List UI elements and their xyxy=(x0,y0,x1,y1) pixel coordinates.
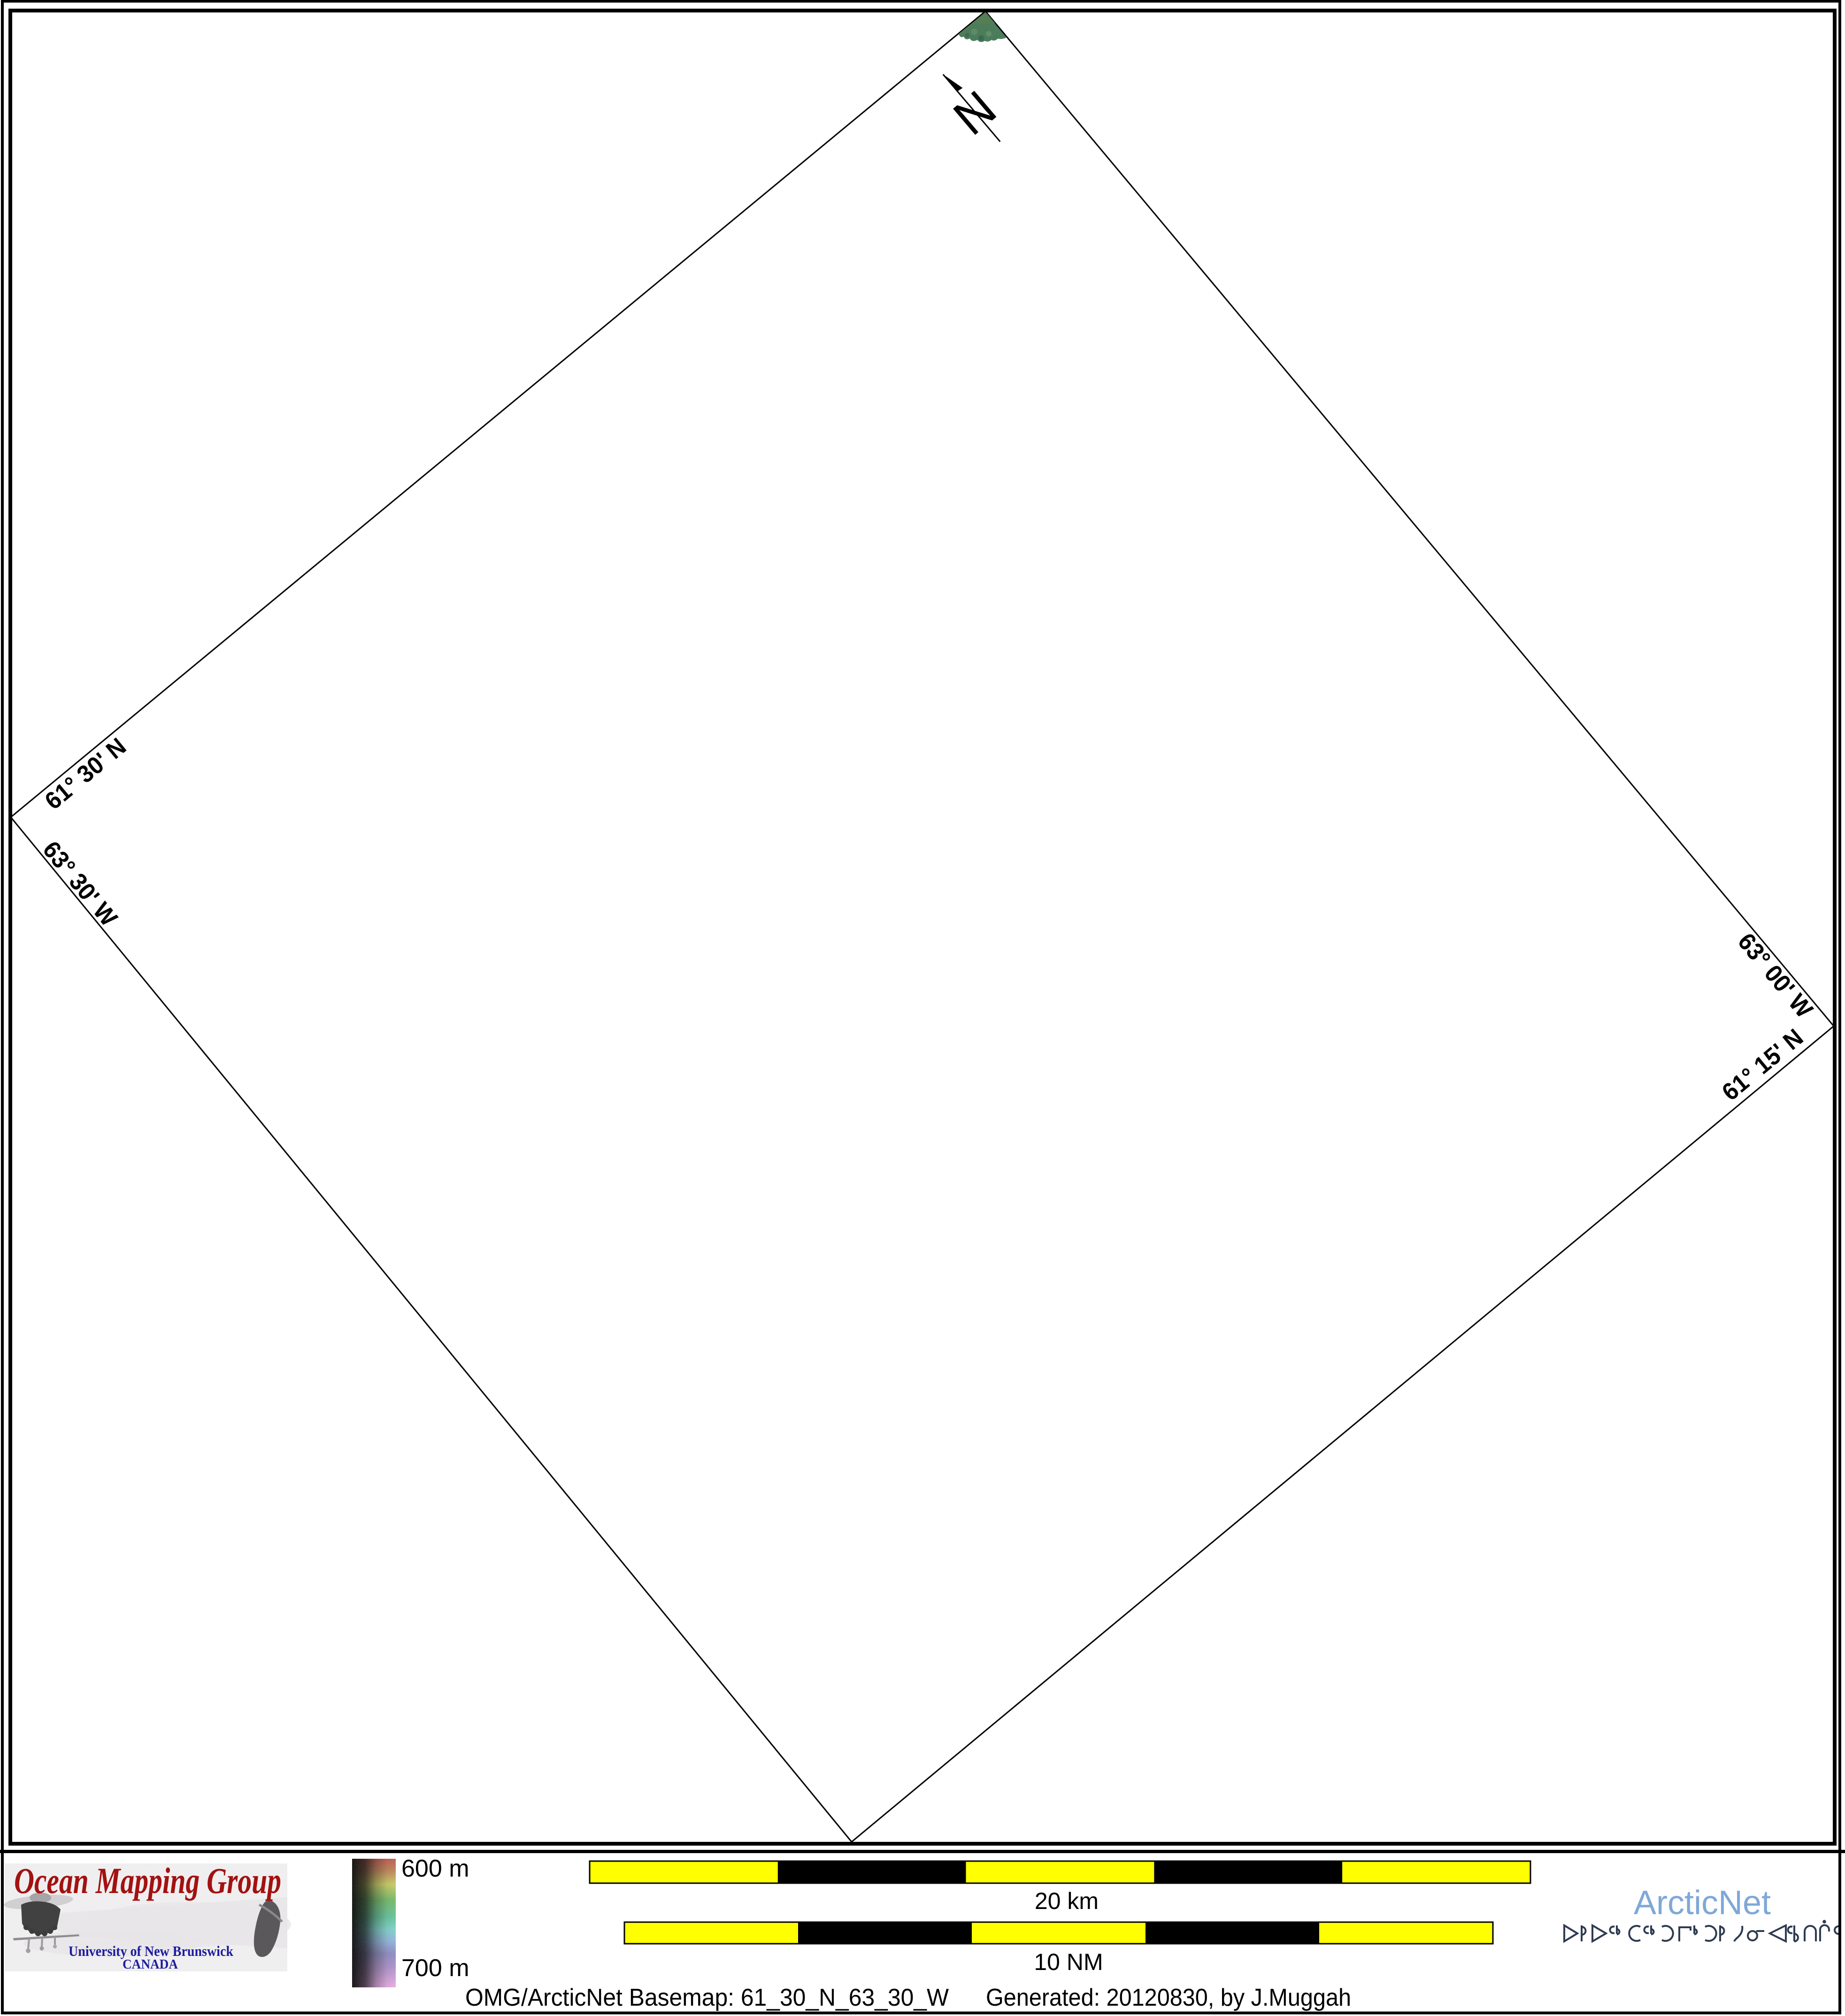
svg-text:10 NM: 10 NM xyxy=(1034,1949,1103,1975)
svg-text:600 m: 600 m xyxy=(401,1855,469,1882)
svg-text:Ocean Mapping Group: Ocean Mapping Group xyxy=(14,1860,281,1901)
svg-text:20 km: 20 km xyxy=(1035,1888,1099,1914)
svg-text:Generated: 20120830, by J.Mugg: Generated: 20120830, by J.Muggah xyxy=(986,1984,1351,2011)
svg-text:700 m: 700 m xyxy=(401,1955,469,1982)
svg-text:ArcticNet: ArcticNet xyxy=(1634,1884,1771,1922)
svg-text:CANADA: CANADA xyxy=(123,1957,178,1972)
svg-text:OMG/ArcticNet Basemap: 61_30_N: OMG/ArcticNet Basemap: 61_30_N_63_30_W xyxy=(465,1984,949,2011)
